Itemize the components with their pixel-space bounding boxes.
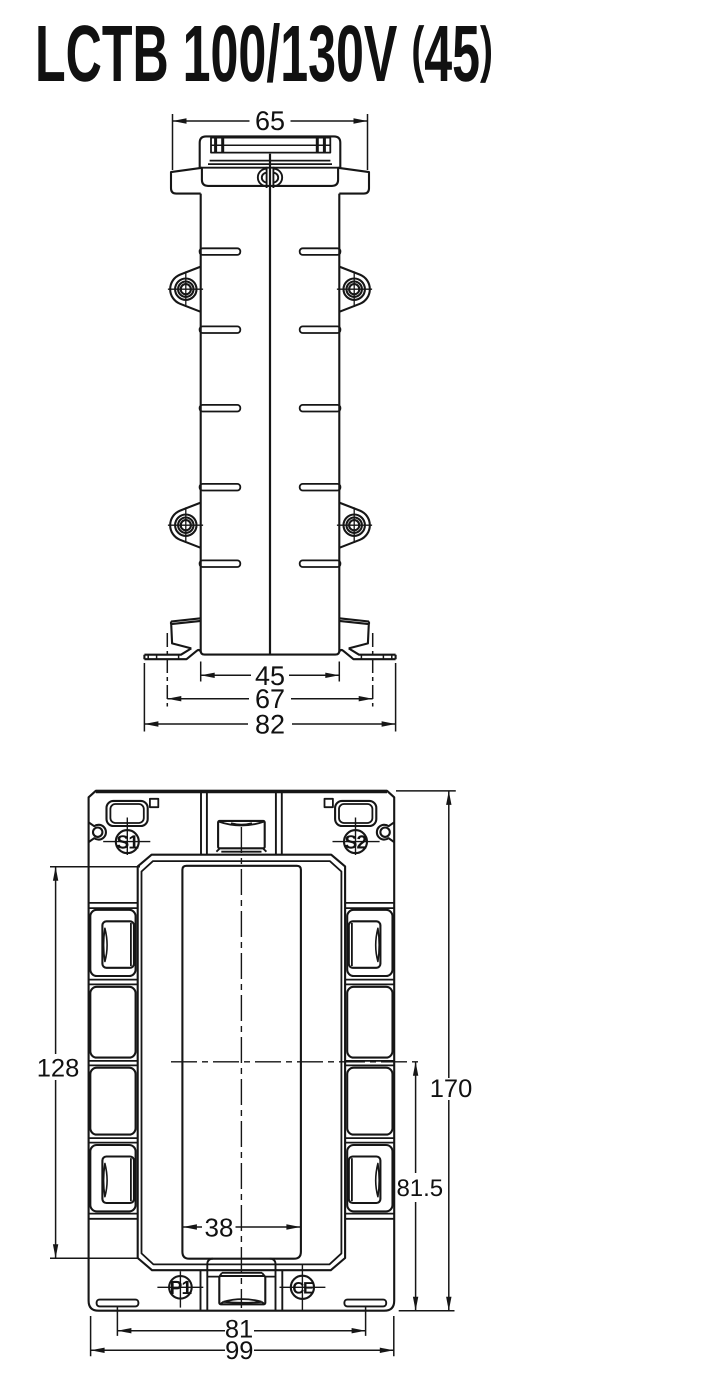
svg-text:S2: S2 <box>345 833 367 854</box>
svg-text:170: 170 <box>430 1075 473 1103</box>
svg-text:99: 99 <box>225 1337 253 1365</box>
svg-text:LCTB 100/130V (45): LCTB 100/130V (45) <box>35 9 493 98</box>
svg-text:CE: CE <box>292 1280 314 1298</box>
svg-text:128: 128 <box>37 1055 80 1083</box>
svg-text:38: 38 <box>205 1212 234 1242</box>
svg-text:65: 65 <box>255 106 285 136</box>
svg-text:S1: S1 <box>116 833 139 854</box>
svg-text:82: 82 <box>255 710 285 740</box>
svg-text:81.5: 81.5 <box>396 1175 443 1202</box>
svg-text:P1: P1 <box>170 1278 193 1299</box>
